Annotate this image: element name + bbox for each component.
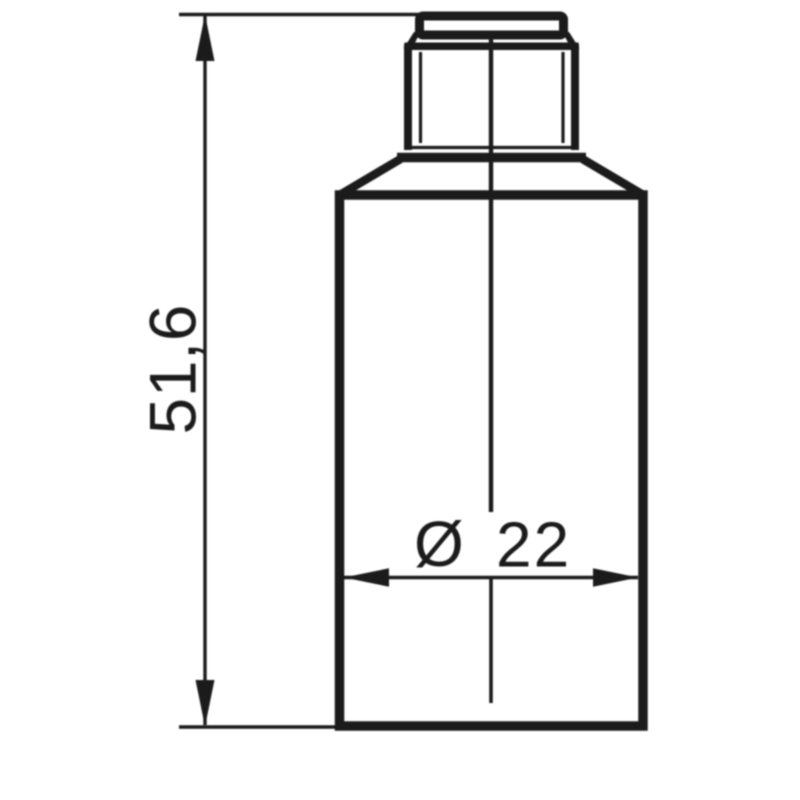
svg-text:Ø: Ø bbox=[414, 508, 464, 580]
svg-text:22: 22 bbox=[496, 509, 571, 581]
svg-text:51,6: 51,6 bbox=[136, 304, 210, 434]
